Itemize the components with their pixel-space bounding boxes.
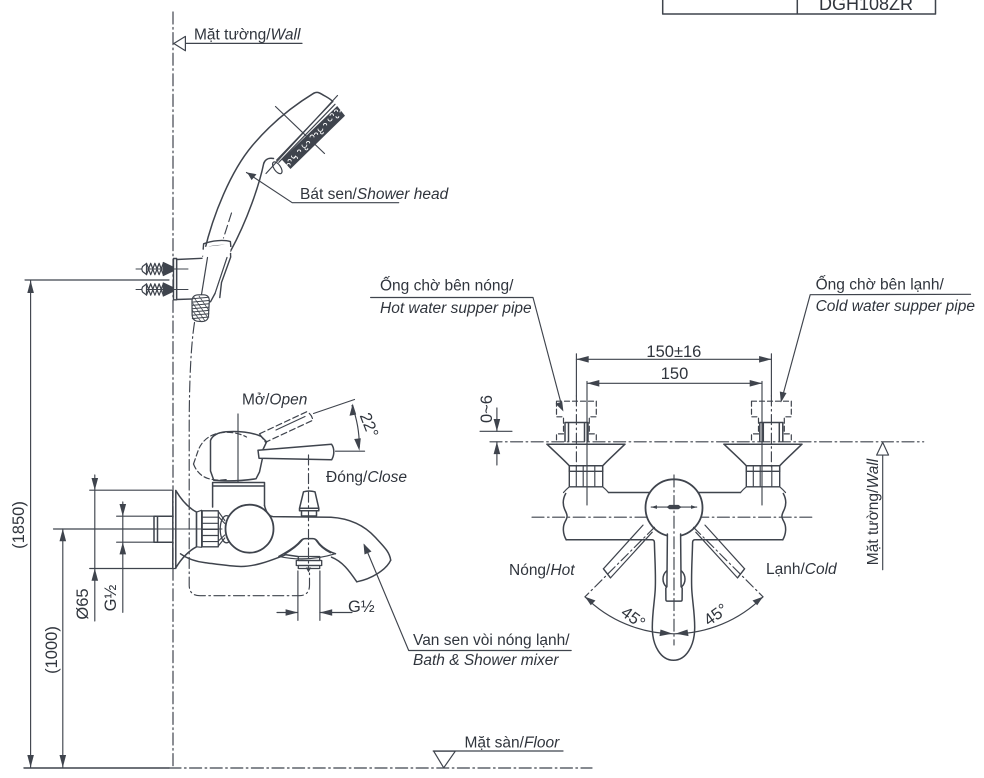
svg-text:Cold water supper pipe: Cold water supper pipe (816, 298, 976, 315)
svg-text:0~6: 0~6 (478, 395, 496, 423)
svg-text:150±16: 150±16 (646, 343, 701, 361)
svg-text:45°: 45° (701, 600, 732, 629)
svg-text:(1000): (1000) (43, 626, 61, 674)
svg-text:Ống chờ bên nóng/: Ống chờ bên nóng/ (380, 277, 514, 295)
svg-text:Ø65: Ø65 (74, 588, 92, 619)
svg-text:Đóng/Close: Đóng/Close (326, 469, 407, 486)
svg-text:Mở/Open: Mở/Open (242, 392, 307, 409)
svg-text:Nóng/Hot: Nóng/Hot (509, 562, 575, 579)
svg-text:Bath & Shower mixer: Bath & Shower mixer (413, 652, 559, 669)
svg-text:G½: G½ (102, 584, 120, 611)
svg-text:Ống chờ bên lạnh/: Ống chờ bên lạnh/ (816, 276, 945, 294)
svg-text:Mặt sàn/Floor: Mặt sàn/Floor (465, 735, 561, 752)
svg-text:45°: 45° (618, 603, 649, 632)
svg-text:Mặt tường/Wall: Mặt tường/Wall (194, 27, 301, 44)
svg-text:DGH108ZR: DGH108ZR (819, 0, 913, 14)
svg-text:Bát sen/Shower head: Bát sen/Shower head (300, 186, 450, 203)
svg-text:150: 150 (661, 365, 689, 383)
svg-text:G½: G½ (348, 598, 375, 616)
svg-text:Hot water supper pipe: Hot water supper pipe (380, 300, 532, 317)
svg-text:Mặt tường/Wall: Mặt tường/Wall (865, 458, 882, 565)
svg-text:22°: 22° (356, 410, 382, 440)
svg-text:Van sen vòi nóng lạnh/: Van sen vòi nóng lạnh/ (413, 632, 570, 649)
svg-text:Lạnh/Cold: Lạnh/Cold (766, 561, 838, 578)
svg-text:(1850): (1850) (10, 501, 28, 549)
